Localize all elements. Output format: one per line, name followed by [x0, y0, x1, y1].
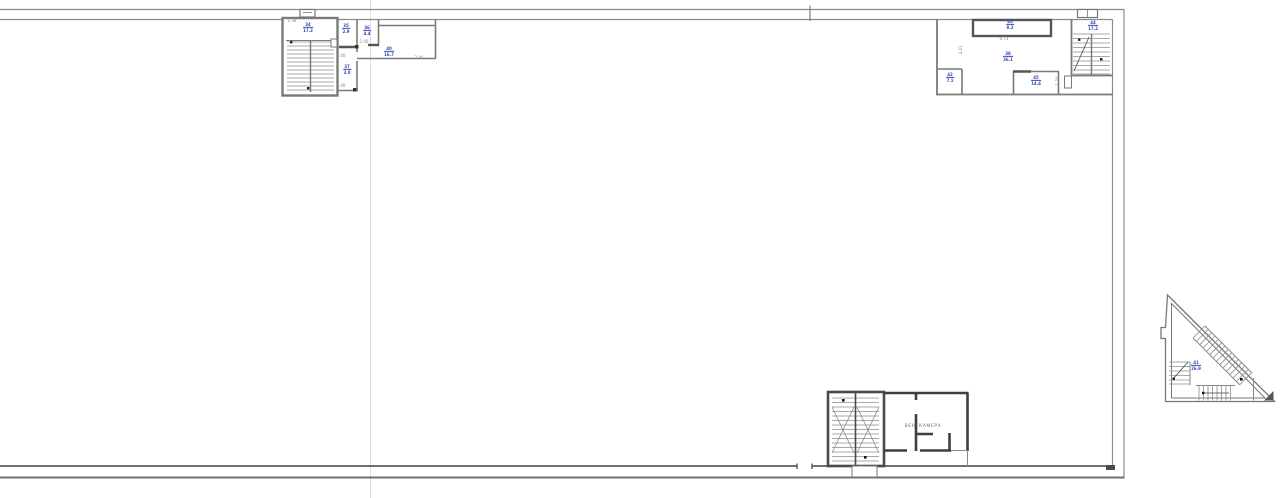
bottom-wall [0, 466, 1125, 478]
large-room-walls [357, 20, 436, 59]
northwest-stairwell [283, 10, 338, 96]
arrow-dot [1173, 378, 1175, 380]
exit-door [852, 466, 877, 477]
arrow-dot [1202, 392, 1204, 394]
floor-plan-canvas: 3417.2352.9364.4373.04016.7438.23836.142… [0, 0, 1280, 498]
roof-hatch [300, 10, 315, 18]
right-wall [1113, 10, 1125, 478]
top-wall [0, 10, 1125, 20]
vent-room [884, 393, 969, 466]
vent-bottom-thin [951, 451, 968, 467]
floor-plan-drawing [0, 0, 1280, 498]
arrow-dot [1100, 58, 1102, 60]
wall-niche [331, 39, 337, 47]
arrow-dot [1240, 378, 1243, 381]
vent-room-label: ВЕНТКАМЕРА [905, 425, 942, 430]
northeast-rooms [936, 20, 1113, 96]
south-stairwell [828, 392, 884, 477]
annex-triangle [1161, 295, 1275, 402]
arrow-dot [290, 41, 292, 43]
arrow-dot [842, 399, 845, 402]
northeast-stairwell [1065, 10, 1113, 89]
arrow-dot [1078, 39, 1080, 41]
inner-room [973, 20, 1051, 36]
bottom-door-jambs [797, 464, 812, 470]
jamb [355, 45, 359, 49]
small-room-walls [937, 69, 962, 95]
arrow-dot [307, 87, 309, 89]
jamb [353, 88, 357, 92]
outer-walls [0, 6, 1125, 478]
arrow-dot [864, 456, 867, 459]
northwest-rooms [338, 20, 436, 92]
corner-marker [1106, 465, 1115, 470]
stair-door [1065, 76, 1072, 88]
bc-room-walls [1014, 72, 1060, 95]
